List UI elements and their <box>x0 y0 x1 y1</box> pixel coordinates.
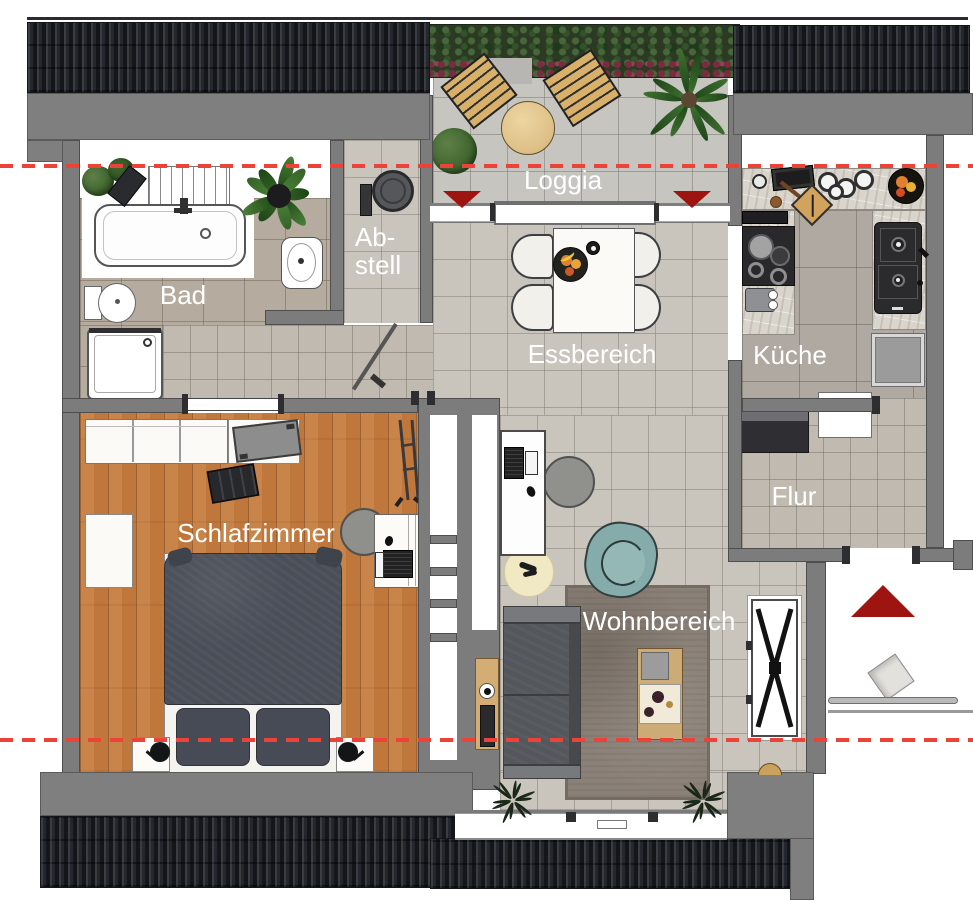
wall-flur-bottom-west <box>728 548 848 562</box>
faucet-icon <box>174 208 192 213</box>
wall-strip-southeast <box>790 838 814 900</box>
burner-icon <box>770 268 787 285</box>
door-jamb <box>427 391 435 405</box>
laptop-screen-icon <box>375 552 384 578</box>
ladder-icon <box>392 418 420 508</box>
office-chair-icon <box>543 456 595 508</box>
shaft-opening <box>430 415 457 760</box>
door-jamb <box>411 391 419 405</box>
round-table-icon <box>501 101 555 155</box>
dining-chair-icon <box>511 284 554 331</box>
spice-jar-icon <box>752 174 767 189</box>
building-top-edge-line <box>27 17 968 20</box>
shower-icon <box>87 328 163 400</box>
corridor-floor <box>163 325 433 398</box>
window-jamb <box>566 812 576 822</box>
window-plant-icon <box>490 786 536 814</box>
table-gray-box-icon <box>641 652 669 680</box>
door-jamb <box>872 396 880 414</box>
room-label-schlafzimmer: Schlafzimmer <box>177 519 334 547</box>
floor-plan: Loggia Bad Ab- stell Essbereich Küche Fl… <box>0 0 973 901</box>
wall-left-outer <box>62 140 80 774</box>
living-window-band <box>455 810 727 840</box>
shaft-opening-2 <box>472 415 497 630</box>
entrance-triangle <box>851 585 915 617</box>
roof-bottom-left <box>40 816 455 888</box>
bathtub-icon <box>94 204 246 267</box>
burner-icon <box>748 262 764 278</box>
laptop-keyboard-icon <box>383 550 413 578</box>
window-handle <box>597 820 627 829</box>
roof-eave-notch <box>27 140 63 162</box>
pepper-mill-icon <box>586 241 600 255</box>
fruit-bowl-icon <box>553 247 588 282</box>
palm-plant-icon <box>645 58 733 142</box>
entrance-door-jamb <box>912 546 920 564</box>
wardrobe-icon <box>85 419 228 464</box>
door-jamb <box>490 203 495 221</box>
plant-pot <box>267 184 291 208</box>
sink-unit-icon <box>874 222 922 314</box>
wall-kitchen-flur <box>742 398 880 412</box>
roof-top-right <box>733 25 970 93</box>
washing-machine-icon <box>372 170 414 212</box>
stair-step <box>430 633 457 642</box>
room-label-flur: Flur <box>772 482 817 510</box>
bed-blanket-icon <box>164 553 342 705</box>
cup-icon <box>768 300 778 310</box>
wall-dining-flur <box>728 360 742 550</box>
doormat-icon <box>867 653 914 700</box>
section-dashed-line-top <box>0 164 973 168</box>
pillow-icon <box>176 708 250 766</box>
towel-radiator-icon <box>148 166 230 206</box>
door-jamb <box>182 394 188 414</box>
washbasin-icon <box>281 237 323 289</box>
room-label-kueche: Küche <box>753 341 827 369</box>
pot-set-icon <box>828 184 844 200</box>
sofa-armrest <box>503 606 581 623</box>
pillow-icon <box>256 708 330 766</box>
room-label-loggia: Loggia <box>524 166 602 194</box>
door-jamb <box>278 394 284 414</box>
pot-set-icon <box>854 170 874 190</box>
laptop-keyboard-icon <box>504 447 524 479</box>
wall-right-edge-piece <box>953 540 973 570</box>
roof-top-left <box>27 22 430 93</box>
toilet-bowl-icon <box>98 283 136 323</box>
cup-icon <box>768 290 778 300</box>
wall-block-southeast <box>727 772 814 839</box>
wall-device-icon <box>360 184 372 216</box>
drain-icon <box>200 228 211 239</box>
stair-step <box>430 567 457 576</box>
plant-pot <box>681 92 697 108</box>
section-dashed-line-bottom <box>0 738 973 742</box>
sink-handle-icon <box>917 280 923 286</box>
tray-icon <box>639 684 681 724</box>
bedroom-sliding-door <box>187 398 279 411</box>
fridge-icon <box>872 334 924 386</box>
room-label-essbereich: Essbereich <box>528 340 657 368</box>
dining-chair-icon <box>511 234 554 279</box>
door-jamb <box>654 203 659 221</box>
loggia-door-middle <box>494 201 656 225</box>
laptop-screen-icon <box>525 451 538 475</box>
wall-living-entry <box>806 562 826 774</box>
sideboard-icon <box>739 411 809 453</box>
sofa-armrest <box>503 765 581 779</box>
room-label-abstell: Ab- stell <box>355 223 401 279</box>
room-label-bad: Bad <box>160 281 206 309</box>
wall-bad-inner <box>265 310 344 325</box>
wall-bedroom-top-west <box>62 398 186 413</box>
loggia-door-triangle <box>673 191 711 208</box>
room-label-wohnbereich: Wohnbereich <box>583 607 736 635</box>
extractor-hood-icon <box>742 211 788 224</box>
fruit-plate-icon <box>888 168 924 204</box>
sofa-body <box>503 623 581 765</box>
knife-icon <box>812 195 814 217</box>
wooden-spoon-icon <box>770 196 782 208</box>
entrance-door-jamb <box>842 546 850 564</box>
stair-step <box>430 599 457 608</box>
x-leg-console-icon <box>751 599 798 737</box>
wall-bedroom-top-east <box>280 398 418 413</box>
stair-step <box>430 535 457 544</box>
dresser-icon <box>85 514 133 588</box>
burner-icon <box>770 246 790 266</box>
wall-kitchen-right-outer <box>926 135 944 548</box>
dining-kitchen-gap <box>728 226 742 360</box>
window-plant-icon <box>680 786 726 814</box>
roof-eave-bottom-left <box>40 772 473 816</box>
console-bracket <box>746 695 752 704</box>
roof-eave-top-left <box>27 93 430 140</box>
landing-step-line <box>828 710 973 713</box>
side-table-icon <box>475 658 499 750</box>
roof-bottom-middle <box>430 838 790 889</box>
console-bracket <box>746 641 752 650</box>
threshold-bar <box>828 697 958 704</box>
window-jamb <box>648 812 658 822</box>
shower-drain-icon <box>143 338 152 347</box>
loggia-door-triangle <box>443 191 481 208</box>
roof-eave-top-right <box>733 93 973 135</box>
